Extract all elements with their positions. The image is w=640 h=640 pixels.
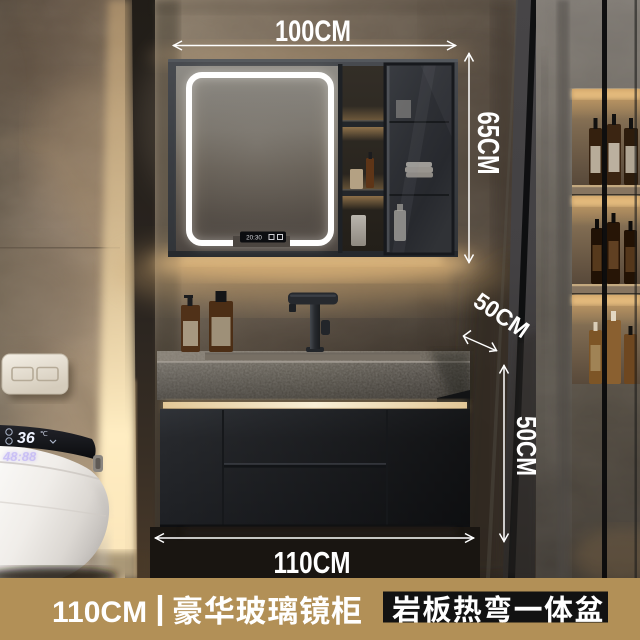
svg-text:48:88: 48:88 xyxy=(2,449,37,464)
svg-text:20:30: 20:30 xyxy=(246,235,262,242)
svg-text:100CM: 100CM xyxy=(275,15,351,48)
svg-text:65CM: 65CM xyxy=(471,112,506,175)
svg-text:℃: ℃ xyxy=(40,431,48,438)
svg-text:110CM: 110CM xyxy=(52,596,147,629)
svg-text:110CM: 110CM xyxy=(274,545,351,580)
svg-text:36: 36 xyxy=(17,430,35,447)
svg-text:50CM: 50CM xyxy=(511,416,542,476)
